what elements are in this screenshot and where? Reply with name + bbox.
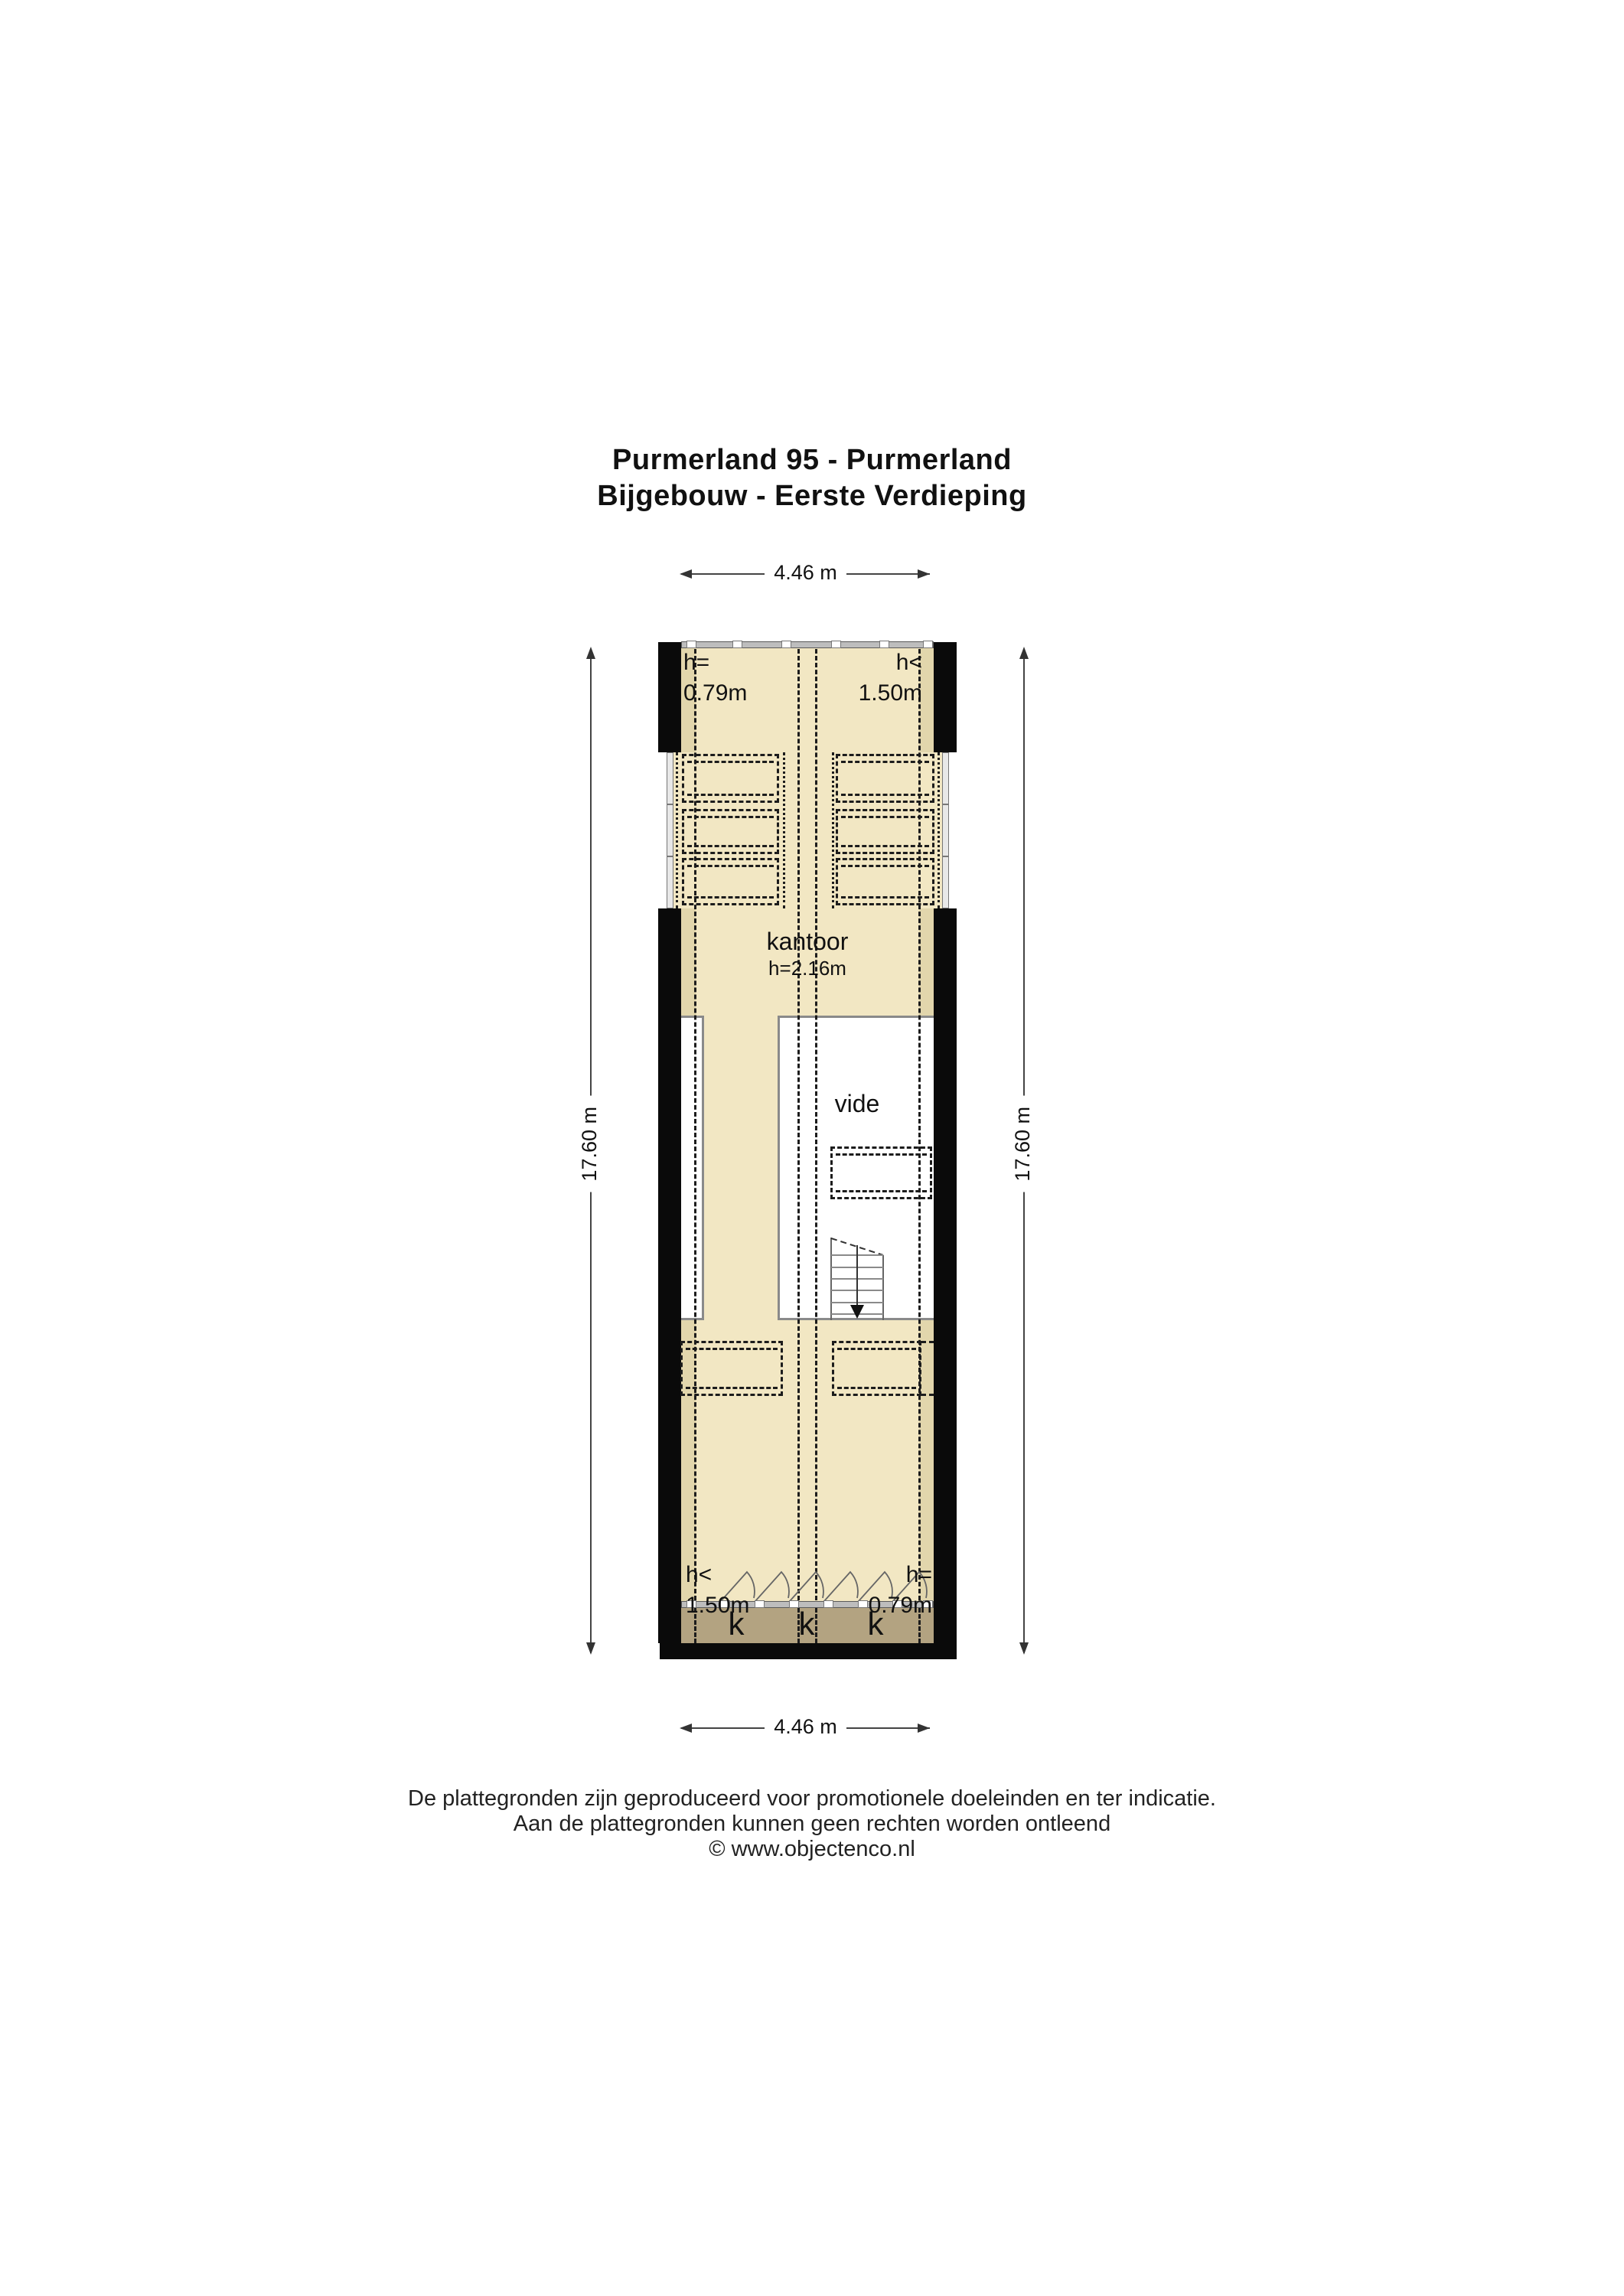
window-mullion <box>942 856 949 857</box>
storage-rect <box>682 809 779 854</box>
roofline-dashed-center-a <box>797 649 800 1607</box>
window-wall-right <box>942 752 949 908</box>
height-label-line: 0.79m <box>804 1590 932 1621</box>
copyright: © www.objectenco.nl <box>0 1837 1624 1862</box>
roof-window-stub <box>921 1394 934 1396</box>
roofline-dotted <box>938 752 940 908</box>
wall-top-left <box>658 642 681 752</box>
wall-left <box>658 908 681 1643</box>
side-void-strip <box>681 1016 704 1320</box>
closet-divider <box>797 1608 800 1643</box>
roofline-dotted <box>783 752 785 908</box>
roof-window-rect <box>830 1146 932 1199</box>
roofline-dashed-center-b <box>815 649 817 1607</box>
height-label-line: 1.50m <box>796 678 922 709</box>
window-mullion <box>667 856 673 857</box>
roof-window-stub <box>921 1341 934 1343</box>
room-height-kantoor: h=2.16m <box>693 957 922 980</box>
storage-rect <box>682 858 779 905</box>
height-label-line: 1.50m <box>686 1590 749 1621</box>
floor-plan: k k k h= 0.79m h< 1.50m h< 1.50m h= 0.79… <box>0 0 1624 2296</box>
roofline-dashed-left <box>694 649 696 1607</box>
height-label-bottom-right: h= 0.79m <box>804 1560 932 1621</box>
roof-window-rect <box>680 1341 783 1396</box>
window-mullion <box>781 641 791 648</box>
window-mullion <box>667 804 673 805</box>
window-wall-left <box>667 752 673 908</box>
wall-top-right <box>934 642 957 752</box>
disclaimer: De plattegronden zijn geproduceerd voor … <box>0 1786 1624 1862</box>
roofline-dashed-right <box>918 649 921 1607</box>
height-label-line: 0.79m <box>683 678 747 709</box>
dimension-bottom-label: 4.46 m <box>765 1715 846 1738</box>
roofline-dotted <box>676 752 678 908</box>
room-label-vide: vide <box>781 1090 934 1118</box>
height-label-top-left: h= 0.79m <box>683 647 747 709</box>
room-label-kantoor: kantoor <box>693 928 922 956</box>
height-label-line: h< <box>796 647 922 678</box>
height-label-line: h= <box>683 647 747 678</box>
window-mullion <box>942 804 949 805</box>
wall-bottom <box>660 1643 957 1659</box>
dimension-bottom: 4.46 m <box>681 1715 930 1739</box>
stair-down-arrow-icon <box>850 1305 864 1319</box>
wall-right <box>934 908 957 1643</box>
staircase <box>830 1238 884 1320</box>
height-label-line: h< <box>686 1560 749 1590</box>
roofline-dotted <box>832 752 834 908</box>
storage-rect <box>682 754 779 803</box>
height-label-bottom-left: h< 1.50m <box>686 1560 749 1621</box>
window-mullion <box>923 641 933 648</box>
disclaimer-line1: De plattegronden zijn geproduceerd voor … <box>0 1786 1624 1812</box>
height-label-top-right: h< 1.50m <box>796 647 922 709</box>
roof-window-rect <box>832 1341 921 1396</box>
disclaimer-line2: Aan de plattegronden kunnen geen rechten… <box>0 1812 1624 1837</box>
height-label-line: h= <box>804 1560 932 1590</box>
